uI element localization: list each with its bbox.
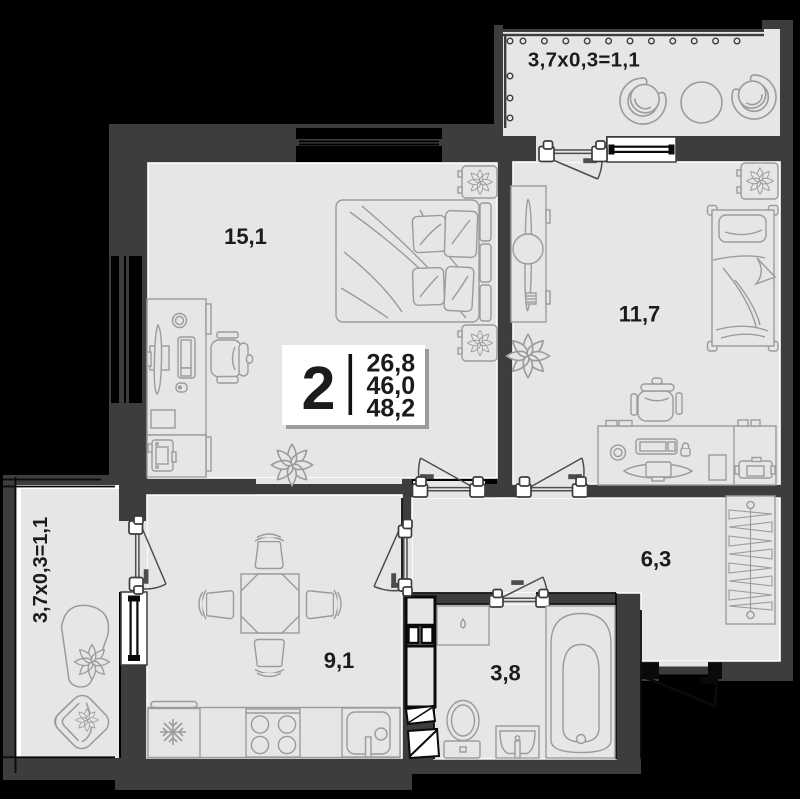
svg-text:3,7x0,3=1,1: 3,7x0,3=1,1 [30,517,52,623]
svg-text:48,2: 48,2 [367,395,416,423]
svg-text:3,8: 3,8 [490,661,521,686]
svg-text:2: 2 [302,354,336,422]
svg-text:11,7: 11,7 [619,302,661,327]
svg-text:3,7x0,3=1,1: 3,7x0,3=1,1 [528,49,640,72]
svg-text:9,1: 9,1 [324,648,355,673]
svg-text:15,1: 15,1 [224,224,267,249]
svg-text:6,3: 6,3 [641,547,672,572]
